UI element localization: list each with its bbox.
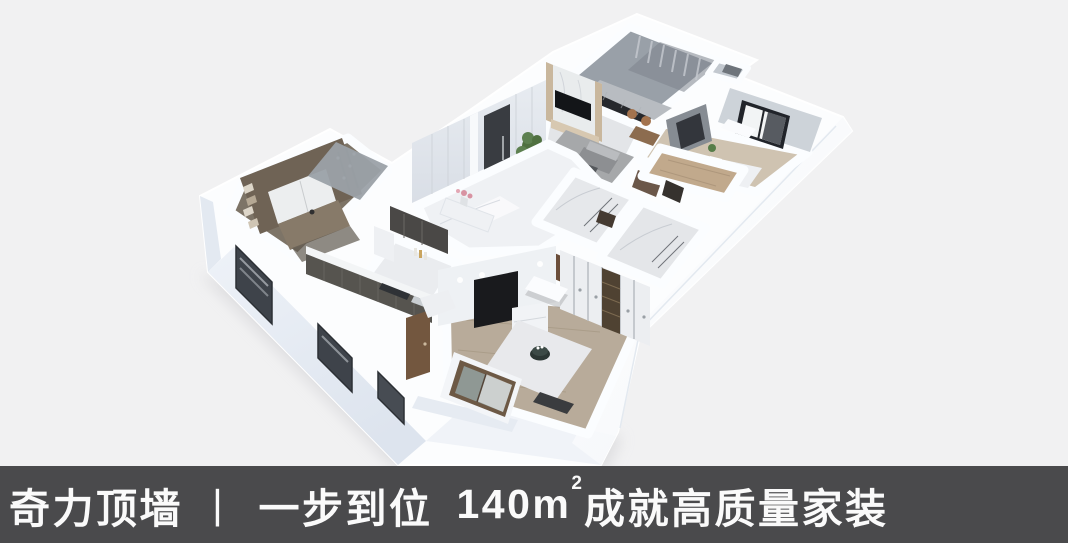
- dining-chair: [641, 116, 651, 126]
- bottom-banner: 奇力顶墙 丨 一步到位 140m2 成就高质量家装: [0, 466, 1068, 543]
- mirror-strip: [470, 112, 478, 176]
- banner-area-superscript: 2: [571, 473, 582, 494]
- banner-tail: 成就高质量家装: [584, 475, 889, 535]
- banner-divider: 丨: [197, 475, 241, 535]
- banner-area-value: 140m: [457, 481, 572, 527]
- wardrobe-niche: [602, 268, 620, 334]
- floorplan-render: [0, 0, 1068, 543]
- banner-brand: 奇力顶墙: [9, 475, 183, 535]
- utility-room: [708, 60, 748, 82]
- desk-lamp: [310, 210, 315, 215]
- master-tv-panel: [474, 271, 518, 328]
- page: 奇力顶墙 丨 一步到位 140m2 成就高质量家装: [0, 0, 1068, 543]
- dining-chair: [627, 109, 637, 119]
- banner-phrase: 一步到位: [259, 475, 433, 535]
- master-door: [406, 310, 430, 380]
- plant-small: [708, 144, 716, 152]
- banner-area: 140m2: [457, 481, 582, 528]
